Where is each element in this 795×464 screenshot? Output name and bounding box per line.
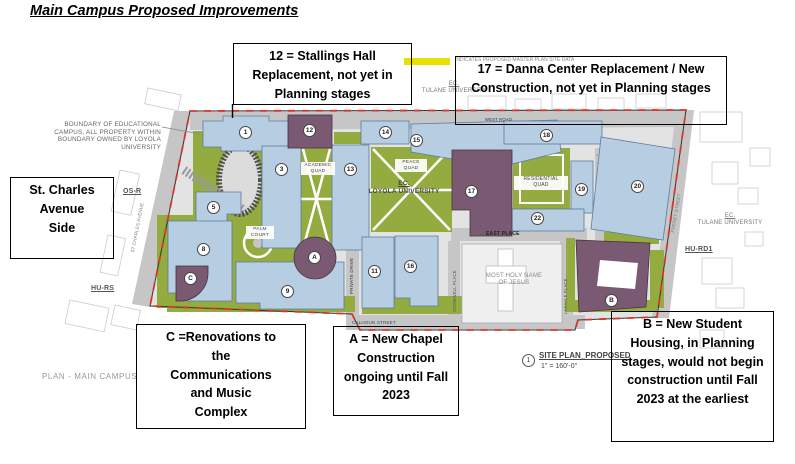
zone-label-hu-rs: HU-RS <box>91 285 114 293</box>
page-title: Main Campus Proposed Improvements <box>30 3 298 19</box>
tulane-right-name: TULANE UNIVERSITY <box>698 220 763 227</box>
palm-court-center <box>253 238 263 248</box>
marker-1: 1 <box>239 126 252 139</box>
site-plan-number: 1 <box>522 354 535 367</box>
callout-new-chapel: A = New Chapel Construction ongoing unti… <box>333 326 459 416</box>
zone-label-os-r: OS-R <box>123 188 141 196</box>
loyola-name: LOYOLA UNIVERSITY <box>368 188 439 196</box>
plan-caption: PLAN - MAIN CAMPUS <box>42 372 137 382</box>
street-label-private-drive: PRIVATE DRIVE <box>349 258 354 294</box>
callout-danna-center: 17 = Danna Center Replacement / New Cons… <box>455 56 727 125</box>
marker-15: 15 <box>410 134 423 147</box>
marker-16: 16 <box>404 260 417 273</box>
street-label-calhoun: CALHOUN STREET <box>352 320 396 325</box>
marker-14: 14 <box>379 126 392 139</box>
tulane-right-ec: EC. <box>725 213 736 220</box>
label-loyola: EC. LOYOLA UNIVERSITY <box>358 180 450 196</box>
quad-label-peace: PEACE QUAD <box>395 159 427 172</box>
marker-19: 19 <box>575 183 588 196</box>
quad-label-academic: ACADEMIC QUAD <box>301 162 335 175</box>
marker-13: 13 <box>344 163 357 176</box>
callout-st-charles-side: St. Charles Avenue Side <box>10 177 114 259</box>
street-label-lasalle: LASALLE PLACE <box>563 278 568 314</box>
marker-3: 3 <box>275 163 288 176</box>
zone-label-hu-rd1: HU-RD1 <box>685 246 713 254</box>
building-16 <box>395 236 438 306</box>
quad-label-palm-court: PALM COURT <box>246 226 274 239</box>
marker-12: 12 <box>303 124 316 137</box>
marker-17: 17 <box>465 185 478 198</box>
marker-18: 18 <box>540 129 553 142</box>
marker-C: C <box>184 272 197 285</box>
slide-canvas: Main Campus Proposed Improvements INDICA… <box>0 0 795 464</box>
callout-stallings-hall: 12 = Stallings Hall Replacement, not yet… <box>233 43 412 105</box>
marker-8: 8 <box>197 243 210 256</box>
callout-student-housing: B = New Student Housing, in Planning sta… <box>611 311 774 442</box>
building-13 <box>332 145 369 250</box>
marker-11: 11 <box>368 265 381 278</box>
label-tulane-right: EC. TULANE UNIVERSITY <box>694 213 766 227</box>
site-plan-scale: 1" = 160'-0" <box>541 363 577 370</box>
marker-B: B <box>605 294 618 307</box>
marker-22: 22 <box>531 212 544 225</box>
marker-5: 5 <box>207 201 220 214</box>
label-most-holy-name: MOST HOLY NAME OF JESUS <box>478 273 550 287</box>
building-22 <box>509 209 584 231</box>
marker-9: 9 <box>281 285 294 298</box>
street-label-cromwell: CROMWELL PLACE <box>452 270 457 312</box>
marker-20: 20 <box>631 180 644 193</box>
callout-communications-complex: C =Renovations to the Communications and… <box>136 324 306 429</box>
building-B-courtyard <box>597 260 638 289</box>
loyola-ec: EC. <box>398 180 409 188</box>
quad-label-residential: RESIDENTIAL QUAD <box>514 176 568 190</box>
street-label-east-place: EAST PLACE <box>486 231 520 237</box>
marker-A: A <box>308 251 321 264</box>
boundary-note: BOUNDARY OF EDUCATIONAL CAMPUS, ALL PROP… <box>26 121 161 151</box>
